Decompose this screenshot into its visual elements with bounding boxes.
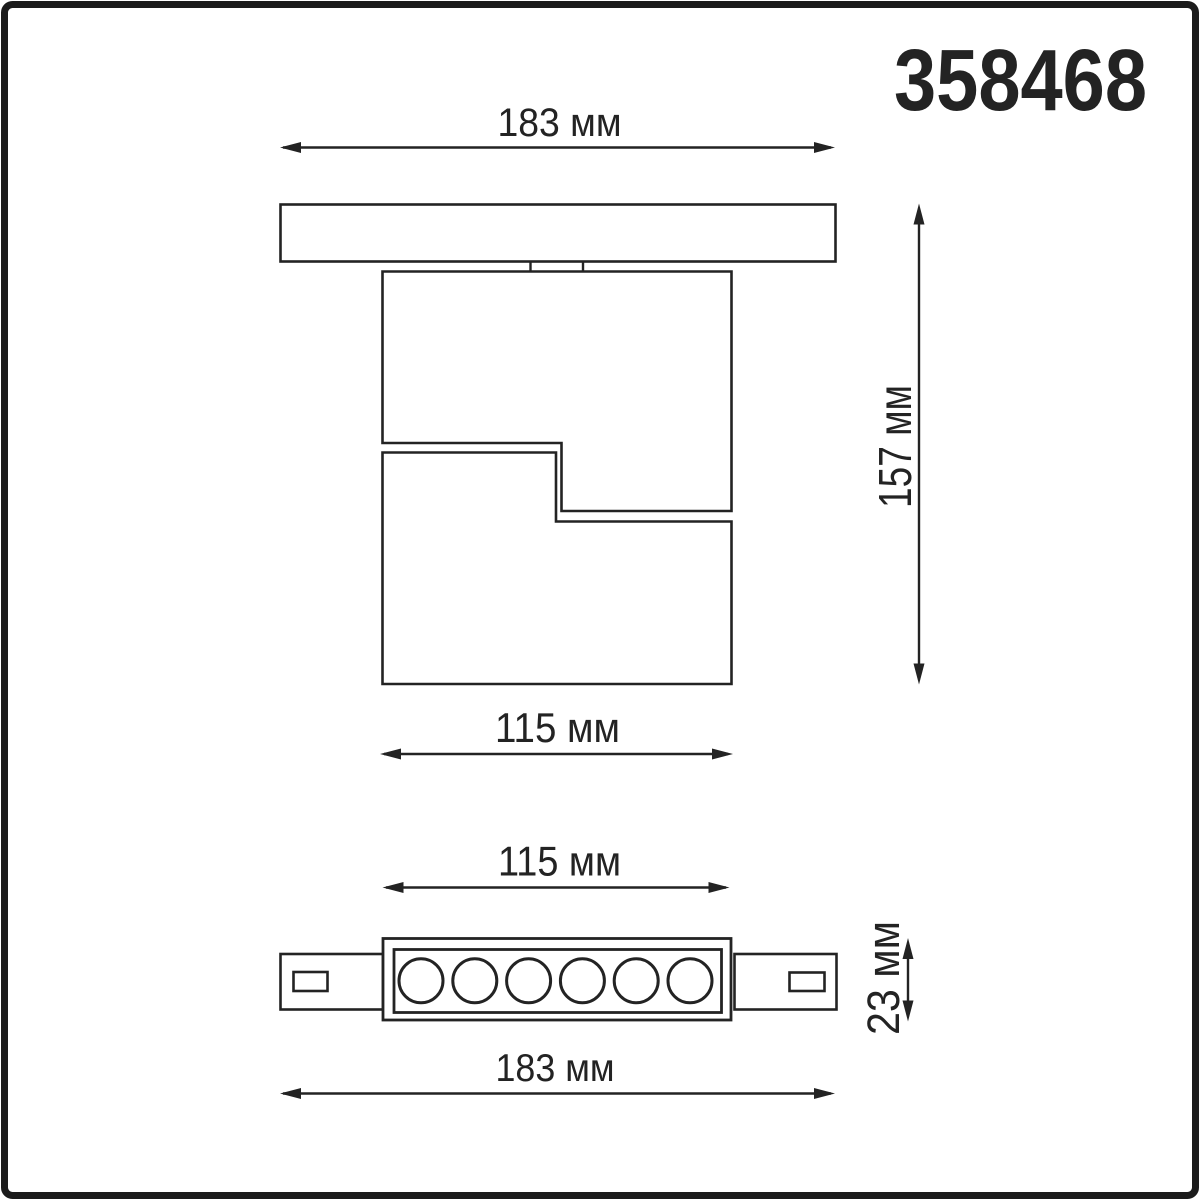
svg-text:115 мм: 115 мм xyxy=(495,704,620,751)
svg-text:358468: 358468 xyxy=(894,32,1147,129)
svg-text:183 мм: 183 мм xyxy=(498,101,622,145)
svg-text:183 мм: 183 мм xyxy=(496,1047,615,1090)
svg-text:23 мм: 23 мм xyxy=(858,921,909,1035)
svg-text:115 мм: 115 мм xyxy=(498,838,621,885)
svg-text:157 мм: 157 мм xyxy=(869,385,921,508)
